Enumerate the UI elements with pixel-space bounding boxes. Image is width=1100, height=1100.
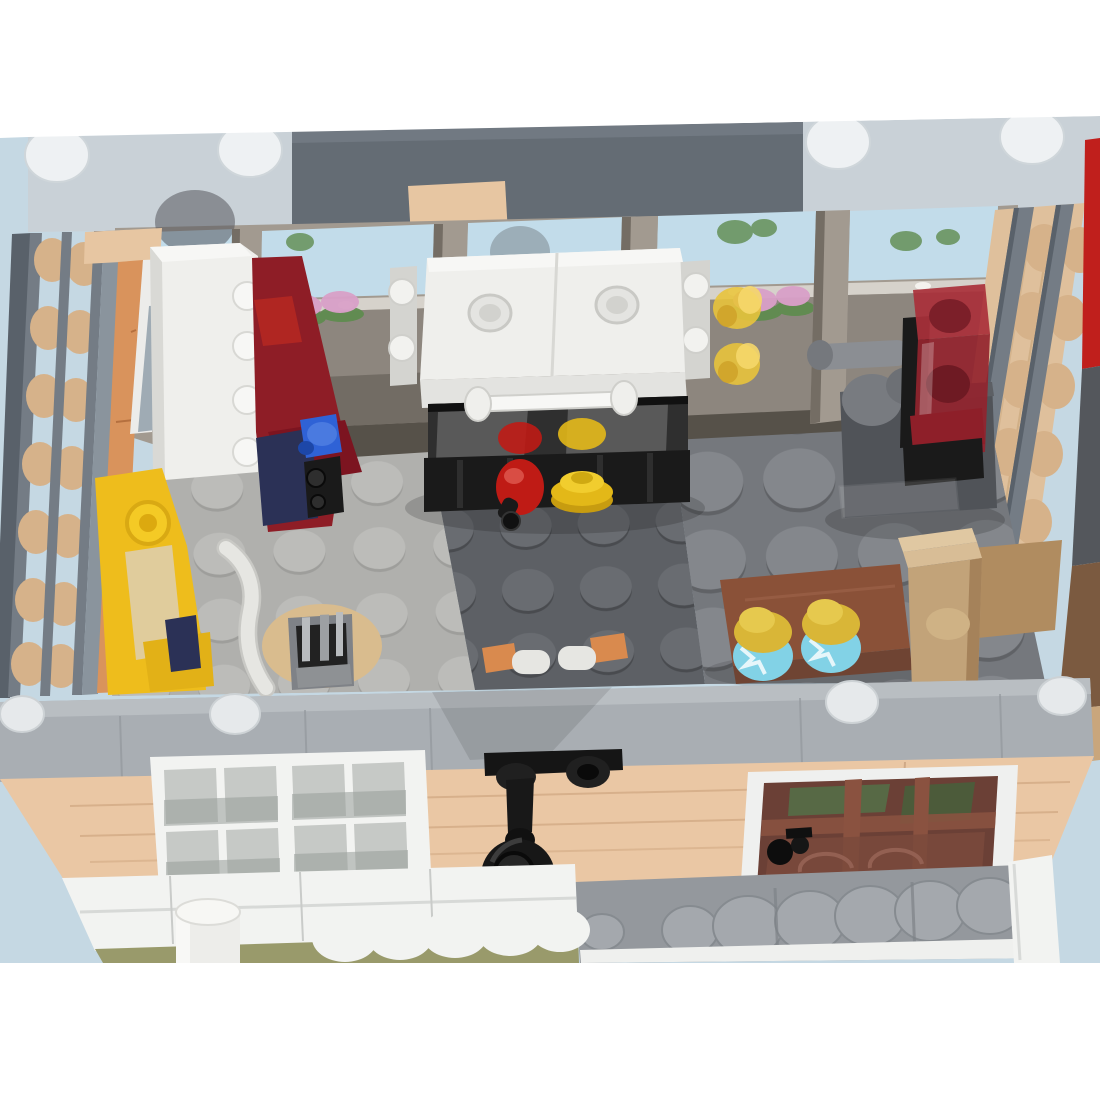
red-brick-edge	[1082, 138, 1100, 369]
storage-jar	[733, 607, 793, 681]
door-handle	[767, 839, 793, 865]
street-facade	[0, 749, 1094, 963]
window-pane-sky	[848, 206, 1000, 281]
white-cabinet	[150, 243, 261, 480]
top-margin	[0, 0, 1100, 138]
screenshot-canvas	[0, 0, 1100, 1100]
rear-tan-box	[973, 540, 1062, 638]
white-pipe	[176, 899, 240, 963]
rug-machine	[288, 612, 354, 690]
glass-tile	[840, 479, 958, 517]
blue-faucet	[298, 414, 342, 458]
storage-jar	[801, 599, 861, 673]
black-camera-piece	[304, 456, 344, 518]
bottom-margin	[0, 963, 1100, 1100]
lego-render-scene	[0, 0, 1100, 1100]
